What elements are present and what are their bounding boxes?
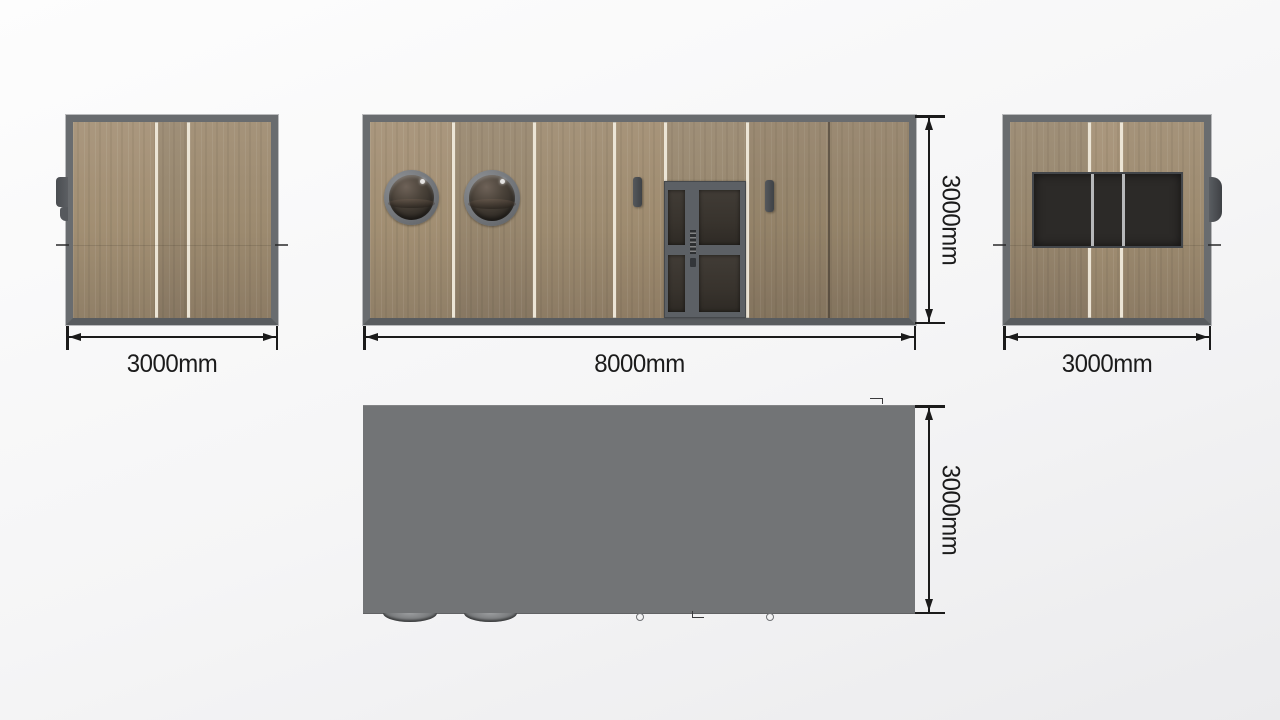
dim-tick xyxy=(1209,326,1212,350)
dim-line xyxy=(364,336,915,338)
roof-handle-ring xyxy=(766,613,774,621)
door-latch xyxy=(690,258,696,267)
top-view-roof xyxy=(363,405,915,614)
joint-tick xyxy=(275,244,288,246)
joint-tick xyxy=(1208,244,1221,246)
entry-door xyxy=(664,181,746,318)
left-side-wall xyxy=(73,122,271,318)
exterior-vent xyxy=(56,177,68,207)
dim-arrow xyxy=(1006,333,1018,341)
wood-panel xyxy=(536,122,613,318)
dim-tick xyxy=(915,322,945,325)
dimension-label-top-depth: 3000mm xyxy=(936,465,965,555)
dimension-label-front-height: 3000mm xyxy=(936,175,965,265)
exterior-vent xyxy=(1209,177,1222,222)
wood-panel xyxy=(158,122,187,318)
door-glass xyxy=(668,190,685,245)
porthole-highlight xyxy=(420,179,425,184)
wood-panel xyxy=(190,122,271,318)
panel-joint xyxy=(73,245,271,246)
roof-door-mark xyxy=(692,611,704,618)
porthole-window xyxy=(384,170,439,225)
roof-corner-mark xyxy=(870,398,883,404)
front-view xyxy=(363,115,916,325)
window-mullion xyxy=(1122,174,1125,246)
dimension-label-right-width: 3000mm xyxy=(1007,350,1207,379)
joint-tick xyxy=(993,244,1006,246)
side-window xyxy=(1032,172,1183,248)
roof-porthole-bulge xyxy=(383,613,437,622)
panel-joint xyxy=(828,122,830,318)
exterior-vent-tail xyxy=(60,207,68,221)
wood-panel xyxy=(616,122,664,318)
porthole-reflection xyxy=(468,199,515,209)
dimension-line-front-width xyxy=(363,326,916,350)
porthole-glass xyxy=(469,175,515,221)
dim-tick xyxy=(914,326,917,350)
dimension-line-left-width xyxy=(66,326,278,350)
dim-arrow xyxy=(925,408,933,420)
roof-handle-ring xyxy=(636,613,644,621)
dim-arrow xyxy=(366,333,378,341)
dimension-line-right-width xyxy=(1003,326,1211,350)
wood-panel xyxy=(73,122,155,318)
drawing-canvas: 3000mm xyxy=(0,0,1280,720)
dim-tick xyxy=(915,612,945,615)
dimension-label-left-width: 3000mm xyxy=(70,350,274,379)
dim-arrow xyxy=(1196,333,1208,341)
dim-arrow xyxy=(263,333,275,341)
wall-handle xyxy=(633,177,642,207)
left-side-view xyxy=(66,115,278,325)
roof-porthole-bulge xyxy=(464,613,517,622)
dimension-label-front-width: 8000mm xyxy=(374,350,905,379)
dim-line xyxy=(1004,336,1210,338)
dim-arrow xyxy=(901,333,913,341)
dim-arrow xyxy=(925,599,933,611)
dim-tick xyxy=(276,326,279,350)
door-glass xyxy=(699,190,740,245)
right-side-view xyxy=(1003,115,1211,325)
dim-line xyxy=(928,116,930,323)
dim-line xyxy=(67,336,277,338)
joint-tick xyxy=(56,244,69,246)
front-wall xyxy=(370,122,909,318)
door-keypad xyxy=(688,228,697,256)
right-side-wall xyxy=(1010,122,1204,318)
dim-arrow xyxy=(925,118,933,130)
porthole-glass xyxy=(389,175,434,220)
dim-arrow xyxy=(925,309,933,321)
window-mullion xyxy=(1091,174,1094,246)
door-glass xyxy=(668,255,685,312)
dim-arrow xyxy=(69,333,81,341)
dim-line xyxy=(928,406,930,613)
door-glass xyxy=(699,255,740,312)
porthole-window xyxy=(464,170,520,226)
wall-handle xyxy=(765,180,774,212)
